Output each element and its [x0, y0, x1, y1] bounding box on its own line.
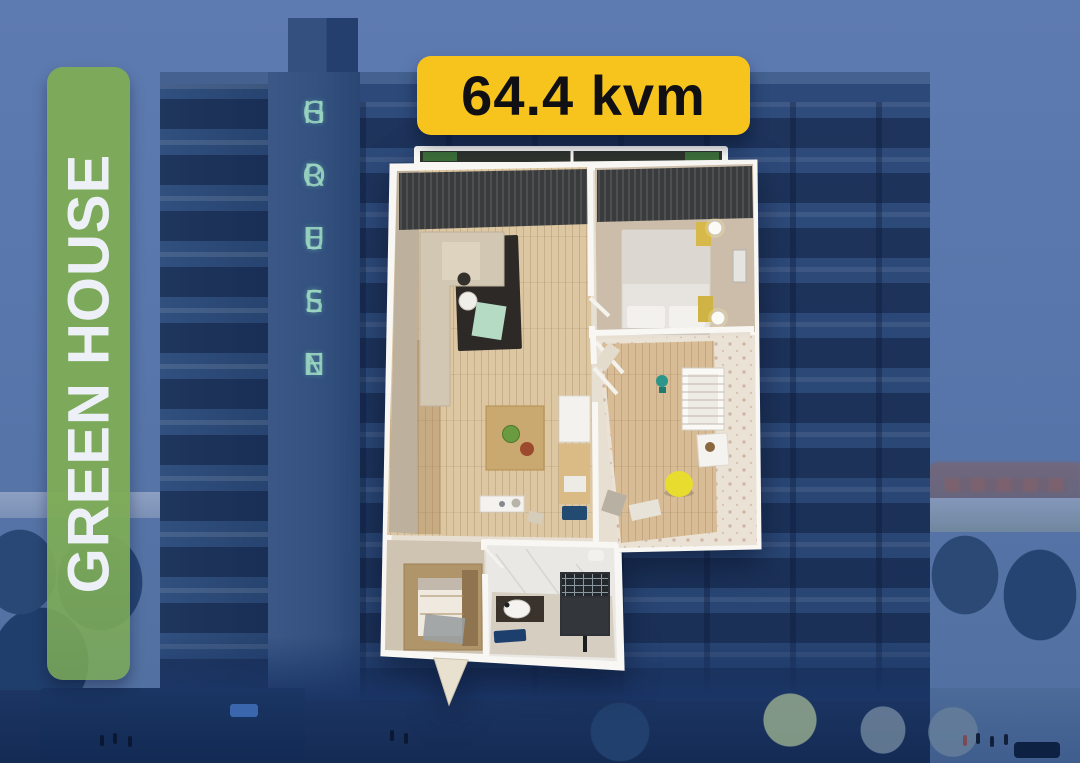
car	[230, 704, 258, 717]
living-room	[387, 167, 593, 538]
building-roof-core	[288, 18, 358, 80]
distant-houses	[945, 478, 1065, 492]
person	[990, 736, 994, 747]
yellow-pouf	[665, 471, 693, 497]
kids-room	[594, 335, 757, 548]
bath-mat	[494, 629, 527, 643]
side-table	[459, 292, 477, 310]
area-badge: 64.4 kvm	[417, 56, 750, 135]
person	[390, 730, 394, 741]
toy	[656, 375, 668, 387]
toilet	[588, 550, 604, 561]
entry-door-leaf	[434, 658, 468, 705]
trees	[845, 692, 995, 763]
wall-art	[733, 250, 746, 282]
lamp	[711, 311, 725, 325]
area-badge-label: 64.4 kvm	[461, 63, 706, 128]
fruit-bowl	[520, 442, 534, 456]
person	[1004, 734, 1008, 745]
teddy-bear	[705, 442, 715, 452]
building-sign: GREEN HOUSE	[282, 96, 346, 696]
kitchen-cabinet	[559, 396, 590, 442]
bowl	[503, 426, 520, 443]
throw-blanket	[472, 302, 507, 340]
brand-badge-label: GREEN HOUSE	[55, 154, 122, 594]
person	[976, 733, 980, 744]
bedroom	[595, 164, 755, 335]
building-sign-word-house: HOUSE	[297, 96, 332, 411]
brand-badge: GREEN HOUSE	[47, 67, 130, 680]
person	[404, 733, 408, 744]
entry-hall	[385, 540, 486, 705]
pillow	[627, 306, 665, 328]
lamp	[708, 221, 722, 235]
promo-image: GREEN HOUSE	[0, 0, 1080, 763]
floor-plan	[376, 144, 768, 716]
car	[1014, 742, 1060, 758]
person	[128, 736, 132, 747]
trees-right	[920, 520, 1080, 670]
building-left-tower	[160, 84, 268, 700]
bus	[40, 688, 305, 760]
person	[100, 735, 104, 746]
bathroom	[486, 545, 617, 661]
person	[963, 735, 967, 746]
kitchen-counter	[559, 444, 590, 504]
person	[113, 733, 117, 744]
door-mat	[423, 614, 465, 644]
